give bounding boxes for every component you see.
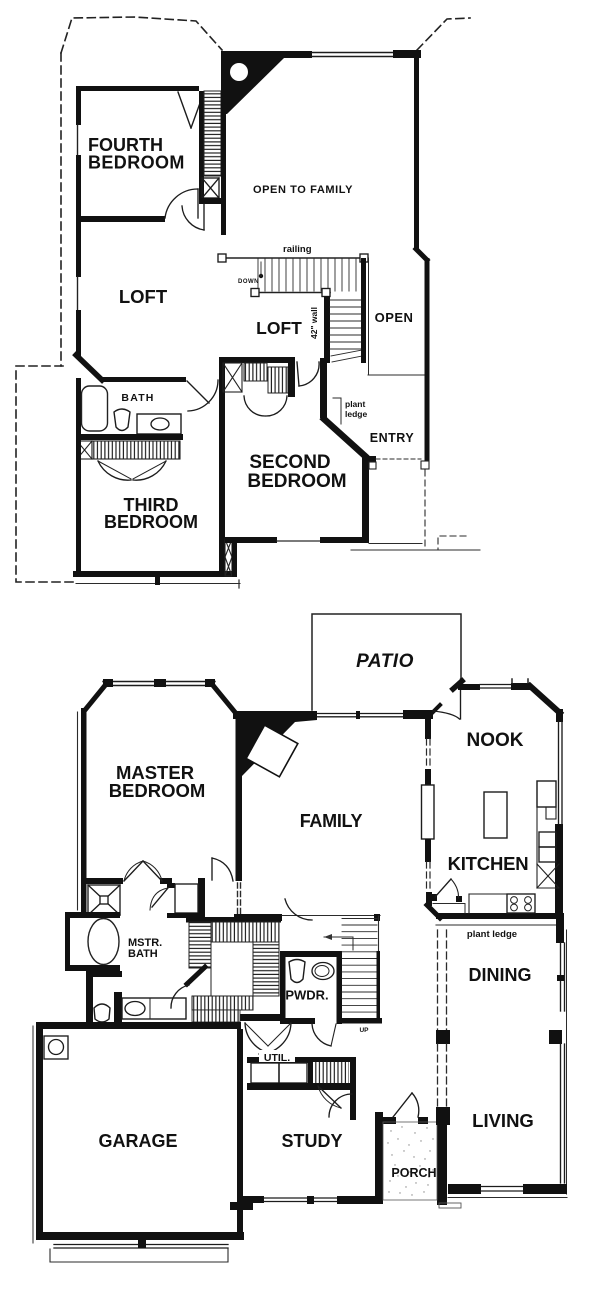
svg-text:PORCH: PORCH bbox=[391, 1166, 436, 1180]
svg-text:UTIL.: UTIL. bbox=[264, 1052, 290, 1064]
svg-text:railing: railing bbox=[283, 244, 312, 255]
svg-text:BEDROOM: BEDROOM bbox=[109, 780, 206, 801]
svg-text:DOWN: DOWN bbox=[238, 279, 259, 285]
svg-text:GARAGE: GARAGE bbox=[98, 1131, 177, 1151]
svg-text:BEDROOM: BEDROOM bbox=[88, 153, 185, 173]
svg-text:OPEN TO FAMILY: OPEN TO FAMILY bbox=[253, 184, 353, 196]
svg-text:DINING: DINING bbox=[469, 965, 532, 985]
svg-text:KITCHEN: KITCHEN bbox=[448, 853, 529, 874]
svg-text:OPEN: OPEN bbox=[375, 310, 414, 325]
svg-text:BEDROOM: BEDROOM bbox=[104, 512, 198, 532]
svg-text:STUDY: STUDY bbox=[281, 1131, 342, 1151]
svg-text:LOFT: LOFT bbox=[119, 286, 168, 307]
svg-text:NOOK: NOOK bbox=[467, 730, 524, 751]
svg-text:plant: plant bbox=[345, 399, 365, 409]
svg-text:plant ledge: plant ledge bbox=[467, 929, 517, 940]
svg-text:UP: UP bbox=[359, 1027, 369, 1034]
svg-text:BEDROOM: BEDROOM bbox=[247, 471, 346, 492]
svg-text:LIVING: LIVING bbox=[472, 1110, 534, 1131]
svg-text:ENTRY: ENTRY bbox=[370, 431, 415, 445]
svg-text:ledge: ledge bbox=[345, 409, 367, 419]
svg-text:LOFT: LOFT bbox=[256, 318, 302, 338]
svg-text:42" wall: 42" wall bbox=[309, 307, 319, 339]
svg-text:BATH: BATH bbox=[128, 948, 158, 960]
svg-text:SECOND: SECOND bbox=[249, 452, 330, 473]
svg-text:FAMILY: FAMILY bbox=[300, 811, 363, 831]
svg-text:PATIO: PATIO bbox=[356, 651, 414, 672]
svg-text:BATH: BATH bbox=[121, 392, 154, 404]
svg-text:PWDR.: PWDR. bbox=[285, 988, 328, 1003]
